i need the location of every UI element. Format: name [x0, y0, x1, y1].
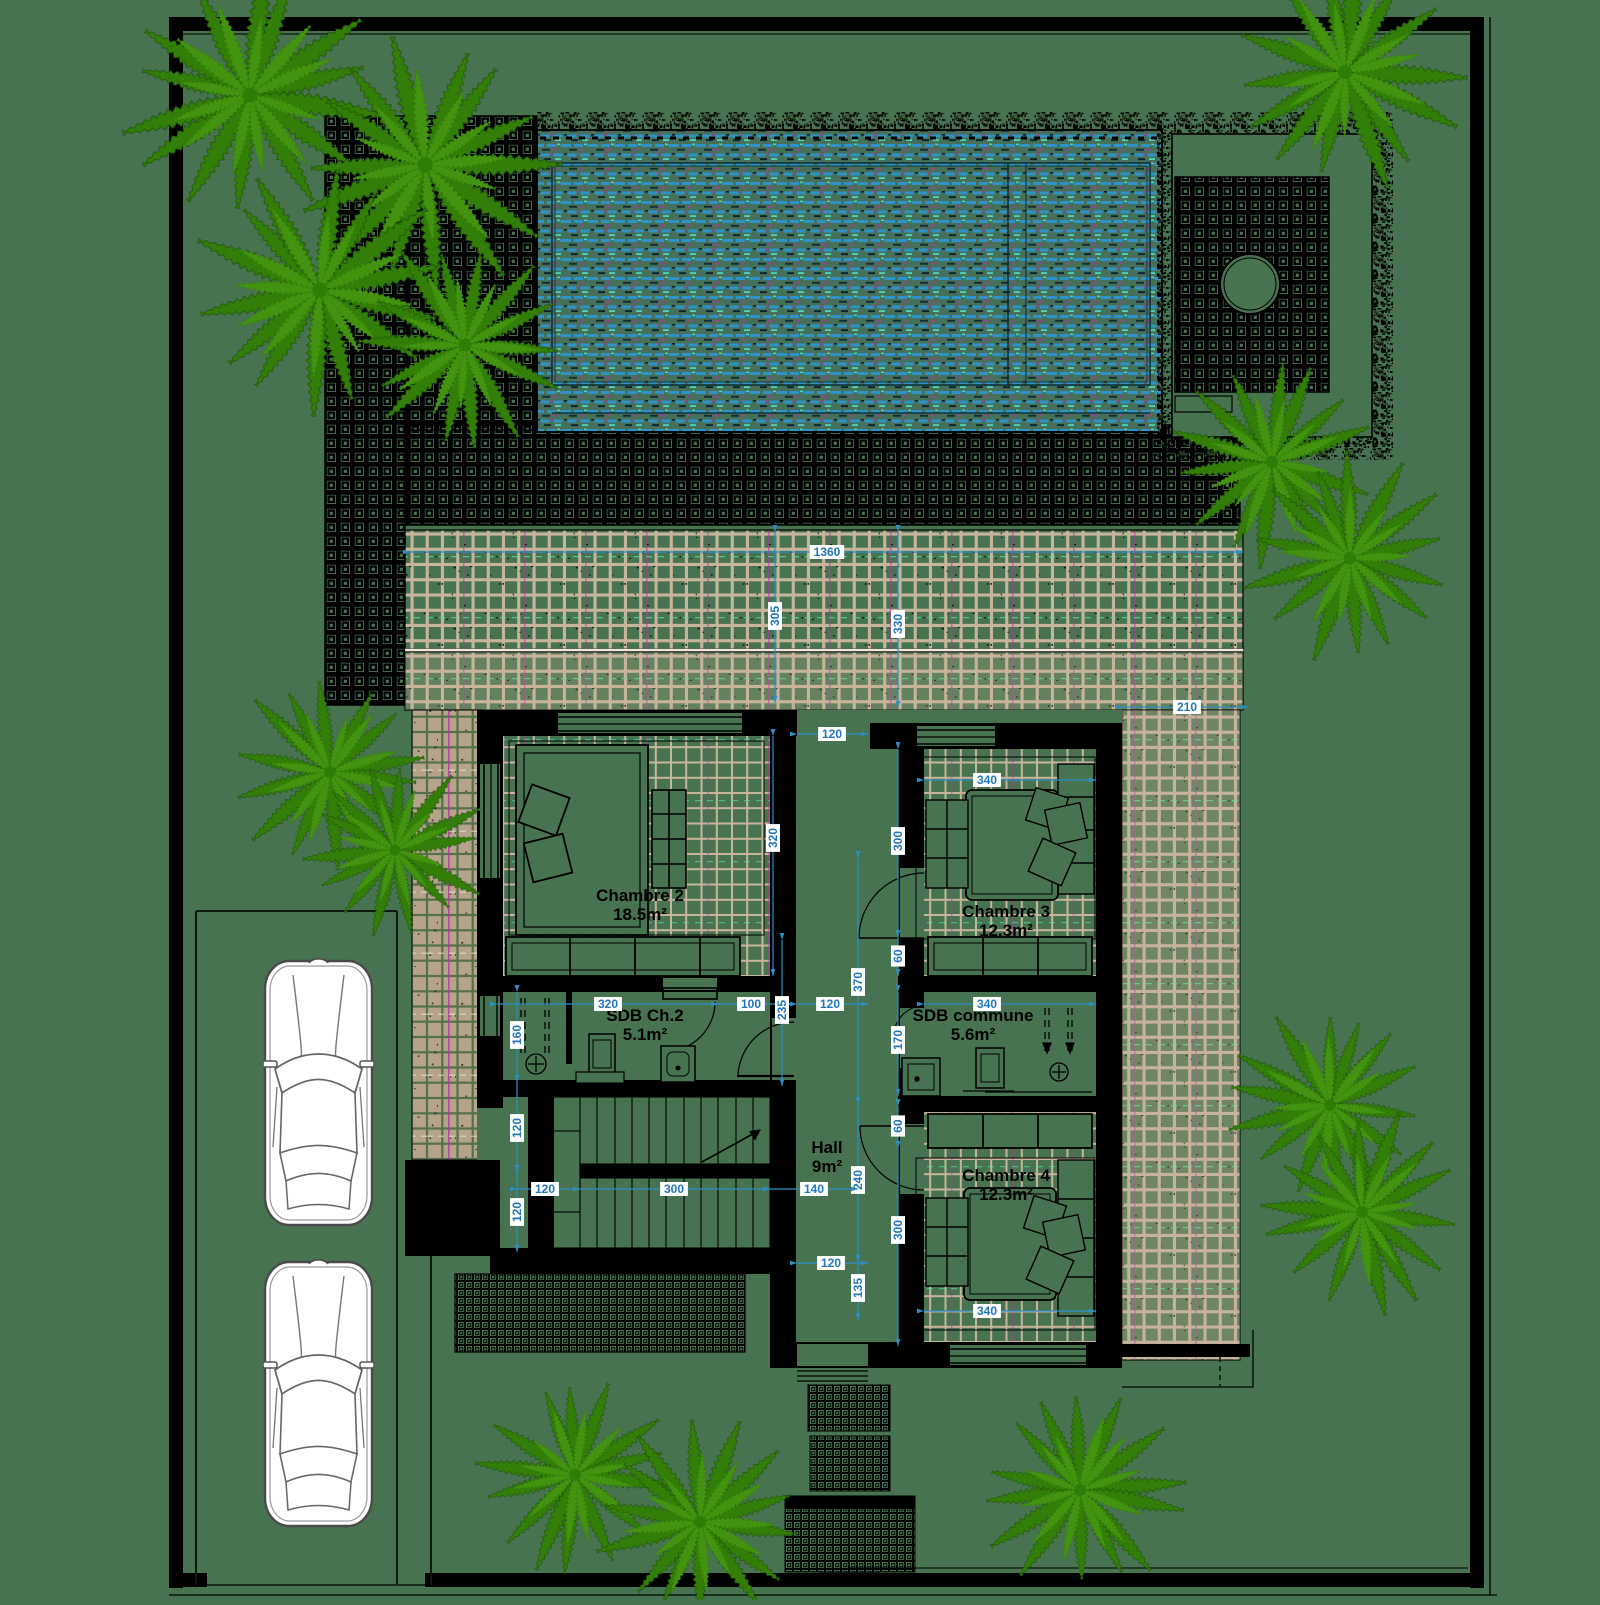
svg-text:120: 120 — [535, 1182, 555, 1196]
svg-text:140: 140 — [804, 1182, 824, 1196]
svg-text:Chambre 2: Chambre 2 — [596, 886, 684, 905]
svg-text:5.6m²: 5.6m² — [951, 1025, 996, 1044]
svg-text:5.1m²: 5.1m² — [623, 1025, 668, 1044]
svg-text:Chambre 3: Chambre 3 — [962, 902, 1050, 921]
svg-text:Chambre 4: Chambre 4 — [962, 1166, 1050, 1185]
svg-text:135: 135 — [851, 1278, 865, 1298]
svg-text:120: 120 — [510, 1202, 524, 1222]
svg-text:340: 340 — [977, 1304, 997, 1318]
svg-text:235: 235 — [775, 1000, 789, 1020]
svg-text:300: 300 — [664, 1182, 684, 1196]
svg-text:300: 300 — [891, 831, 905, 851]
svg-text:320: 320 — [766, 828, 780, 848]
svg-text:SDB commune: SDB commune — [913, 1006, 1034, 1025]
svg-text:370: 370 — [851, 972, 865, 992]
svg-text:60: 60 — [891, 1119, 905, 1133]
svg-text:1360: 1360 — [814, 545, 841, 559]
svg-text:12.3m²: 12.3m² — [979, 921, 1033, 940]
svg-text:18.5m²: 18.5m² — [613, 905, 667, 924]
svg-text:240: 240 — [851, 1170, 865, 1190]
svg-text:60: 60 — [891, 949, 905, 963]
svg-text:340: 340 — [977, 773, 997, 787]
svg-text:12.3m²: 12.3m² — [979, 1185, 1033, 1204]
svg-text:120: 120 — [510, 1118, 524, 1138]
svg-text:210: 210 — [1177, 700, 1197, 714]
svg-text:330: 330 — [891, 614, 905, 634]
svg-text:160: 160 — [510, 1025, 524, 1045]
svg-text:120: 120 — [822, 727, 842, 741]
svg-text:305: 305 — [768, 606, 782, 626]
svg-text:100: 100 — [741, 997, 761, 1011]
svg-text:170: 170 — [891, 1030, 905, 1050]
svg-text:9m²: 9m² — [812, 1157, 843, 1176]
svg-text:120: 120 — [820, 997, 840, 1011]
svg-text:120: 120 — [821, 1256, 841, 1270]
svg-text:340: 340 — [977, 997, 997, 1011]
svg-text:320: 320 — [598, 997, 618, 1011]
svg-text:300: 300 — [891, 1220, 905, 1240]
svg-text:Hall: Hall — [811, 1138, 842, 1157]
